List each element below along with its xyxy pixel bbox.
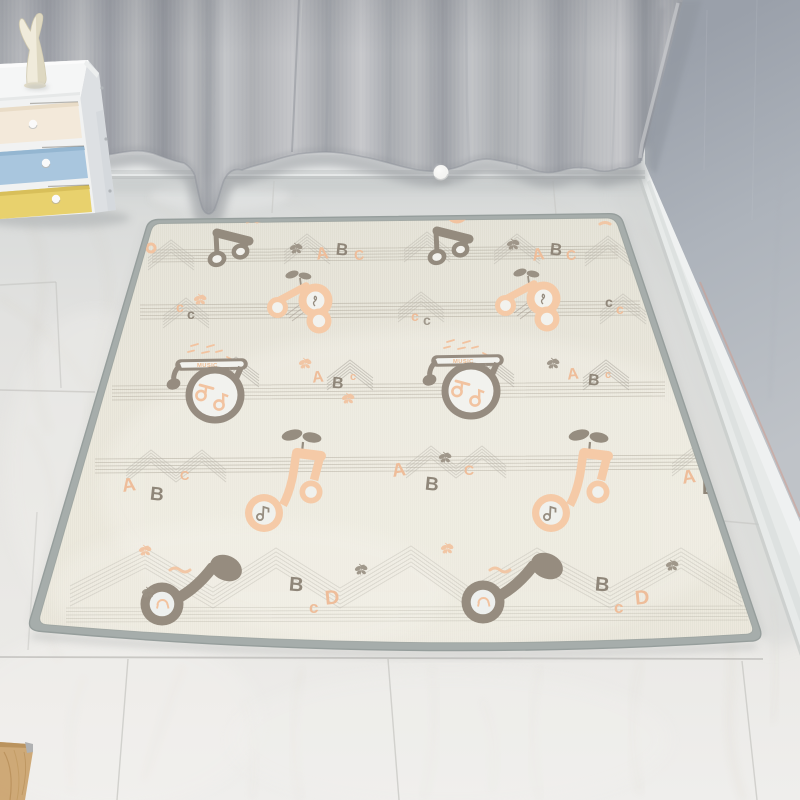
svg-text:C: C bbox=[565, 246, 576, 263]
svg-text:D: D bbox=[634, 586, 651, 609]
svg-text:c: c bbox=[176, 299, 184, 315]
svg-text:C: C bbox=[180, 468, 190, 483]
svg-text:B: B bbox=[424, 474, 440, 496]
svg-text:c: c bbox=[350, 371, 356, 383]
svg-text:c: c bbox=[614, 598, 623, 617]
svg-text:B: B bbox=[587, 372, 600, 390]
svg-text:B: B bbox=[331, 375, 344, 393]
svg-text:C: C bbox=[353, 246, 364, 263]
svg-text:B: B bbox=[549, 240, 563, 260]
svg-text:B: B bbox=[288, 573, 304, 596]
svg-text:A: A bbox=[566, 365, 580, 383]
svg-text:A: A bbox=[531, 244, 546, 265]
svg-text:D: D bbox=[324, 586, 341, 609]
svg-text:c: c bbox=[616, 301, 624, 317]
svg-text:B: B bbox=[149, 484, 165, 506]
svg-text:C: C bbox=[464, 462, 474, 478]
svg-text:A: A bbox=[311, 368, 325, 386]
svg-text:c: c bbox=[605, 369, 611, 381]
svg-text:B: B bbox=[594, 573, 610, 596]
svg-text:c: c bbox=[411, 308, 419, 324]
svg-text:c: c bbox=[187, 306, 195, 322]
svg-text:B: B bbox=[335, 240, 349, 260]
svg-text:A: A bbox=[315, 243, 330, 264]
svg-text:c: c bbox=[309, 598, 318, 617]
svg-text:c: c bbox=[423, 312, 431, 328]
svg-text:c: c bbox=[605, 294, 613, 310]
